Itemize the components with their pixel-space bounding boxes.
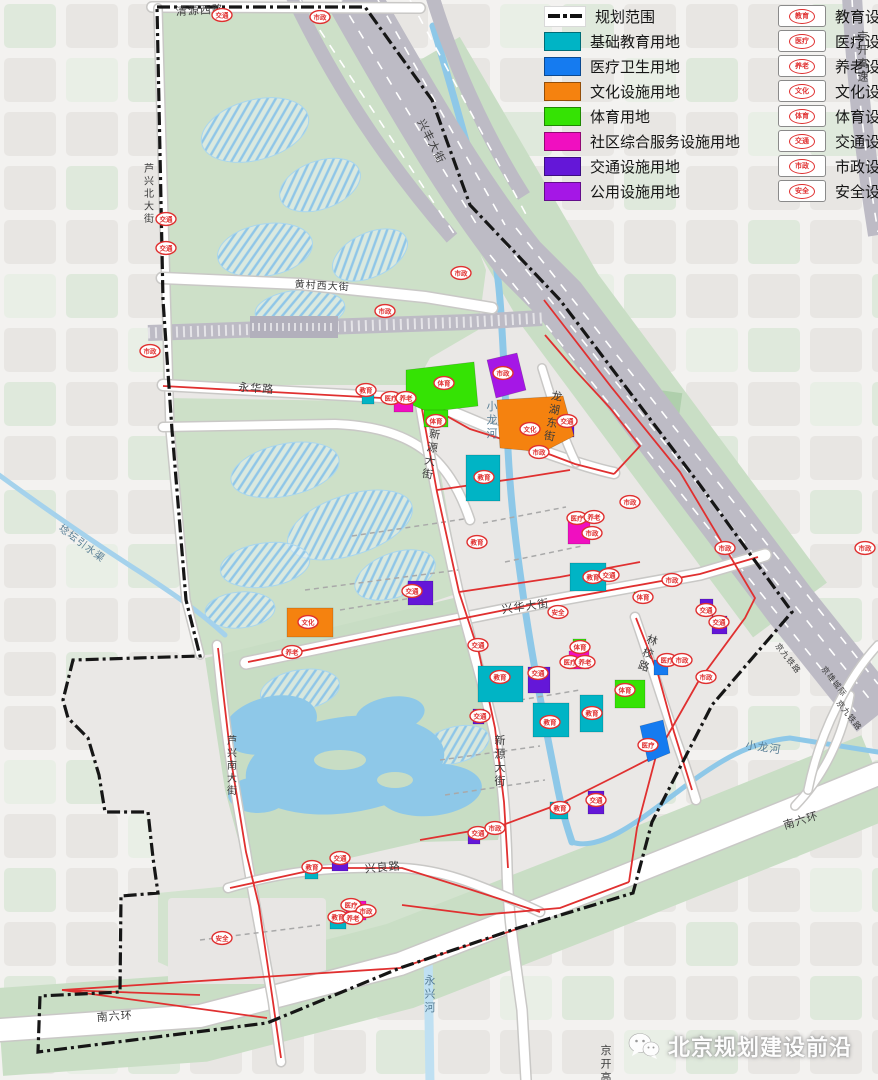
- facility-marker-市政: 市政: [620, 496, 640, 509]
- facility-marker-文化: 文化: [520, 423, 540, 436]
- facility-marker-体育: 体育: [615, 684, 635, 697]
- facility-icon-安全: 安全: [778, 180, 826, 202]
- facility-marker-养老: 养老: [575, 656, 595, 669]
- legend-landuse-row: 规划范围: [544, 6, 740, 26]
- facility-marker-text: 体育: [637, 592, 651, 601]
- facility-marker-text: 市政: [497, 368, 511, 377]
- legend-facility-row: 养老养老设施: [778, 56, 878, 76]
- legend-landuse-row: 社区综合服务设施用地: [544, 131, 740, 151]
- road-label: 京开高速: [601, 1043, 612, 1080]
- facility-marker-text: 交通: [590, 795, 604, 804]
- facility-marker-市政: 市政: [375, 305, 395, 318]
- legend-landuse-label: 社区综合服务设施用地: [590, 131, 740, 152]
- legend-facility-label: 教育设施: [835, 6, 878, 27]
- facility-marker-text: 市政: [314, 12, 328, 21]
- legend-facility-label: 交通设施: [835, 131, 878, 152]
- facility-marker-text: 文化: [301, 617, 316, 626]
- facility-marker-text: 交通: [561, 416, 575, 425]
- facility-marker-文化: 文化: [298, 616, 318, 629]
- facility-marker-text: 教育: [493, 672, 508, 681]
- map-legend: 规划范围基础教育用地医疗卫生用地文化设施用地体育用地社区综合服务设施用地交通设施…: [544, 6, 878, 201]
- facility-marker-text: 交通: [472, 828, 486, 837]
- facility-marker-text: 市政: [859, 543, 873, 552]
- facility-marker-养老: 养老: [282, 646, 302, 659]
- facility-marker-text: 交通: [216, 10, 230, 19]
- facility-marker-市政: 市政: [529, 446, 549, 459]
- facility-marker-交通: 交通: [468, 639, 488, 652]
- water-label: 小龙河: [487, 400, 498, 440]
- facility-marker-text: 市政: [455, 268, 469, 277]
- facility-marker-市政: 市政: [696, 671, 716, 684]
- facility-marker-市政: 市政: [582, 527, 602, 540]
- lake-island: [314, 750, 366, 770]
- planning-map-page: 清源西路芦兴北大街黄村西大街永华路兴丰大街新源大街新源大街兴华大街林校路龙湖东街…: [0, 0, 878, 1080]
- facility-marker-text: 教育: [470, 537, 485, 546]
- facility-marker-交通: 交通: [470, 710, 490, 723]
- legend-facility-row: 教育教育设施: [778, 6, 878, 26]
- facility-marker-交通: 交通: [586, 794, 606, 807]
- facility-marker-text: 交通: [474, 711, 488, 720]
- facility-marker-text: 交通: [334, 853, 348, 862]
- legend-landuse-row: 基础教育用地: [544, 31, 740, 51]
- legend-facility-row: 交通交通设施: [778, 131, 878, 151]
- facility-marker-交通: 交通: [156, 242, 176, 255]
- facility-marker-text: 市政: [533, 447, 547, 456]
- facility-marker-text: 市政: [489, 823, 503, 832]
- legend-landuse-label: 公用设施用地: [590, 181, 680, 202]
- facility-marker-text: 交通: [160, 214, 174, 223]
- facility-marker-市政: 市政: [493, 367, 513, 380]
- facility-marker-text: 医疗: [571, 513, 585, 522]
- legend-facility-label: 文化设施: [835, 81, 878, 102]
- legend-facility-label: 安全设施: [835, 181, 878, 202]
- facility-marker-text: 交通: [160, 243, 174, 252]
- road-label: 南六环: [96, 1009, 133, 1024]
- facility-marker-text: 体育: [619, 685, 633, 694]
- legend-facility-row: 安全安全设施: [778, 181, 878, 201]
- legend-facility-label: 养老设施: [835, 56, 878, 77]
- legend-facility-label: 体育设施: [835, 106, 878, 127]
- legend-landuse-row: 医疗卫生用地: [544, 56, 740, 76]
- facility-marker-text: 养老: [587, 512, 602, 521]
- facility-marker-教育: 教育: [467, 536, 487, 549]
- facility-marker-市政: 市政: [662, 574, 682, 587]
- landuse-swatch-sports: [544, 107, 581, 126]
- facility-marker-医疗: 医疗: [638, 739, 658, 752]
- facility-marker-text: 教育: [586, 572, 601, 581]
- legend-landuse-label: 基础教育用地: [590, 31, 680, 52]
- facility-marker-市政: 市政: [451, 267, 471, 280]
- facility-marker-交通: 交通: [330, 852, 350, 865]
- facility-marker-text: 养老: [346, 913, 361, 922]
- facility-marker-市政: 市政: [672, 654, 692, 667]
- road-label: 新源大街: [495, 733, 506, 788]
- facility-marker-text: 教育: [543, 717, 558, 726]
- road-label: 芦兴南大街: [227, 735, 237, 797]
- lake-island: [377, 772, 413, 788]
- facility-marker-text: 交通: [532, 668, 546, 677]
- legend-landuse-label: 文化设施用地: [590, 81, 680, 102]
- facility-marker-市政: 市政: [310, 11, 330, 24]
- facility-marker-教育: 教育: [302, 861, 322, 874]
- facility-marker-text: 教育: [359, 385, 374, 394]
- watermark-text: 北京规划建设前沿: [668, 1030, 852, 1062]
- facility-marker-text: 体育: [430, 416, 444, 425]
- facility-marker-text: 交通: [472, 640, 486, 649]
- facility-icon-养老: 养老: [778, 55, 826, 77]
- landuse-swatch-education: [544, 32, 581, 51]
- facility-marker-市政: 市政: [855, 542, 875, 555]
- facility-icon-市政: 市政: [778, 155, 826, 177]
- water-label: 永兴河: [425, 973, 436, 1014]
- facility-marker-教育: 教育: [582, 707, 602, 720]
- facility-marker-text: 教育: [305, 862, 320, 871]
- landuse-swatch-community: [544, 132, 581, 151]
- facility-marker-text: 养老: [578, 657, 593, 666]
- facility-marker-安全: 安全: [548, 606, 568, 619]
- facility-marker-text: 交通: [700, 605, 714, 614]
- facility-marker-教育: 教育: [540, 716, 560, 729]
- facility-marker-安全: 安全: [212, 932, 232, 945]
- facility-marker-text: 市政: [379, 306, 393, 315]
- landuse-swatch-public: [544, 182, 581, 201]
- landuse-swatch-medical: [544, 57, 581, 76]
- facility-marker-text: 体育: [438, 378, 452, 387]
- wechat-icon: [628, 1032, 660, 1060]
- facility-marker-text: 市政: [676, 655, 690, 664]
- legend-facility-row: 体育体育设施: [778, 106, 878, 126]
- facility-marker-交通: 交通: [709, 616, 729, 629]
- legend-facility-row: 医疗医疗设施: [778, 31, 878, 51]
- legend-landuse-column: 规划范围基础教育用地医疗卫生用地文化设施用地体育用地社区综合服务设施用地交通设施…: [544, 6, 740, 201]
- facility-marker-教育: 教育: [490, 671, 510, 684]
- facility-marker-text: 教育: [585, 708, 600, 717]
- facility-marker-text: 市政: [624, 497, 638, 506]
- facility-marker-text: 市政: [700, 672, 714, 681]
- facility-icon-文化: 文化: [778, 80, 826, 102]
- facility-marker-体育: 体育: [426, 415, 446, 428]
- facility-marker-养老: 养老: [396, 392, 416, 405]
- facility-marker-养老: 养老: [343, 912, 363, 925]
- facility-marker-体育: 体育: [633, 591, 653, 604]
- legend-landuse-row: 公用设施用地: [544, 181, 740, 201]
- facility-marker-text: 医疗: [345, 900, 359, 909]
- landuse-swatch-transport: [544, 157, 581, 176]
- facility-marker-教育: 教育: [550, 802, 570, 815]
- planning-boundary-swatch: [544, 6, 586, 27]
- facility-marker-text: 养老: [285, 647, 300, 656]
- facility-marker-体育: 体育: [570, 641, 590, 654]
- facility-marker-text: 养老: [399, 393, 414, 402]
- facility-marker-text: 安全: [552, 607, 566, 616]
- legend-facility-row: 市政市政设施: [778, 156, 878, 176]
- facility-marker-养老: 养老: [584, 511, 604, 524]
- legend-landuse-label: 交通设施用地: [590, 156, 680, 177]
- city-block: [168, 898, 326, 984]
- facility-marker-教育: 教育: [474, 471, 494, 484]
- facility-marker-text: 教育: [477, 472, 492, 481]
- facility-marker-text: 文化: [523, 424, 538, 433]
- legend-facilities-column: 教育教育设施医疗医疗设施养老养老设施文化文化设施体育体育设施交通交通设施市政市政…: [778, 6, 878, 201]
- facility-marker-text: 交通: [406, 586, 420, 595]
- road-label: 芦兴北大街: [144, 163, 154, 225]
- legend-landuse-row: 体育用地: [544, 106, 740, 126]
- facility-marker-教育: 教育: [356, 384, 376, 397]
- legend-landuse-row: 交通设施用地: [544, 156, 740, 176]
- facility-marker-text: 市政: [719, 543, 733, 552]
- facility-marker-交通: 交通: [156, 213, 176, 226]
- facility-marker-交通: 交通: [402, 585, 422, 598]
- facility-marker-text: 交通: [603, 570, 617, 579]
- facility-marker-text: 交通: [713, 617, 727, 626]
- facility-marker-交通: 交通: [212, 9, 232, 22]
- facility-marker-市政: 市政: [485, 822, 505, 835]
- facility-marker-text: 体育: [574, 642, 588, 651]
- facility-icon-交通: 交通: [778, 130, 826, 152]
- facility-marker-市政: 市政: [140, 345, 160, 358]
- facility-marker-交通: 交通: [599, 569, 619, 582]
- facility-marker-text: 教育: [553, 803, 568, 812]
- legend-facility-label: 市政设施: [835, 156, 878, 177]
- facility-marker-text: 安全: [216, 933, 230, 942]
- facility-marker-体育: 体育: [434, 377, 454, 390]
- facility-marker-text: 医疗: [642, 740, 656, 749]
- landuse-swatch-culture: [544, 82, 581, 101]
- facility-marker-text: 市政: [144, 346, 158, 355]
- facility-marker-text: 市政: [586, 528, 600, 537]
- legend-facility-row: 文化文化设施: [778, 81, 878, 101]
- legend-landuse-label: 体育用地: [590, 106, 650, 127]
- facility-icon-教育: 教育: [778, 5, 826, 27]
- facility-marker-交通: 交通: [528, 667, 548, 680]
- river: [428, 948, 430, 1080]
- facility-marker-市政: 市政: [715, 542, 735, 555]
- legend-landuse-row: 文化设施用地: [544, 81, 740, 101]
- facility-icon-体育: 体育: [778, 105, 826, 127]
- legend-facility-label: 医疗设施: [835, 31, 878, 52]
- legend-landuse-label: 规划范围: [595, 6, 655, 27]
- facility-marker-text: 市政: [666, 575, 680, 584]
- facility-marker-交通: 交通: [557, 415, 577, 428]
- watermark: 北京规划建设前沿: [628, 1030, 852, 1062]
- facility-icon-医疗: 医疗: [778, 30, 826, 52]
- facility-marker-交通: 交通: [696, 604, 716, 617]
- legend-landuse-label: 医疗卫生用地: [590, 56, 680, 77]
